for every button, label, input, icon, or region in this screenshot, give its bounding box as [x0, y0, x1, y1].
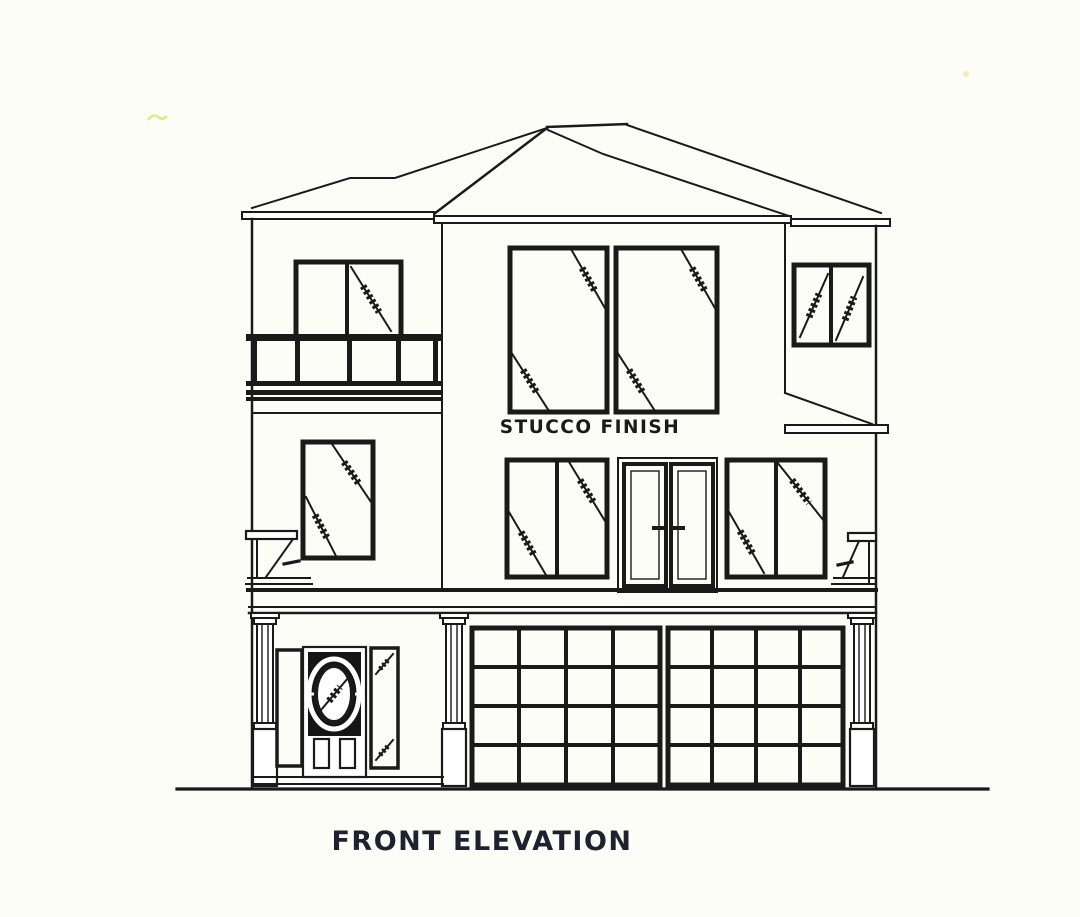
balcony-post: [295, 341, 300, 383]
entry-door: [303, 647, 366, 777]
balcony-floor-edge: [246, 397, 443, 401]
balcony-bottom-rail: [246, 390, 442, 395]
deck-floor-edge: [246, 588, 878, 592]
balcony-post: [396, 341, 401, 383]
material-note-label: STUCCO FINISH: [500, 417, 680, 438]
column-shaft: [446, 624, 462, 723]
fascia-left: [242, 212, 434, 219]
door-lower-panel: [340, 739, 355, 768]
scan-dot-yellow: [963, 71, 969, 77]
balcony-post: [252, 341, 257, 383]
title-label: FRONT ELEVATION: [331, 826, 632, 857]
pent-roof-fascia: [785, 425, 888, 433]
fascia-center: [434, 216, 791, 223]
rail-cap: [246, 531, 297, 539]
column-pedestal: [442, 729, 466, 786]
column-pedestal: [850, 729, 874, 786]
rail-cap: [848, 533, 876, 541]
balcony-mid-rail: [246, 381, 442, 386]
elevation-drawing-page: STUCCO FINISH: [0, 0, 1080, 917]
balcony-post: [433, 341, 438, 383]
door-lower-panel: [314, 739, 329, 768]
balcony-post: [347, 341, 352, 383]
column-shaft: [854, 624, 870, 723]
column-shaft: [257, 624, 273, 723]
drawing-canvas: STUCCO FINISH: [0, 0, 1080, 917]
